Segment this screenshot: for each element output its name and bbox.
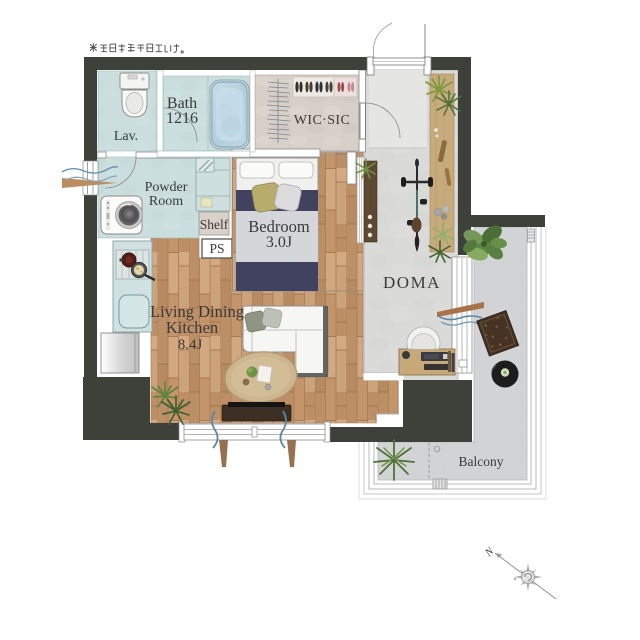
svg-text:8.4J: 8.4J (178, 337, 203, 353)
svg-text:3.0J: 3.0J (266, 234, 292, 251)
svg-text:WIC·SIC: WIC·SIC (294, 113, 350, 128)
svg-text:1216: 1216 (166, 110, 198, 127)
svg-text:Powder: Powder (145, 180, 188, 195)
svg-text:Balcony: Balcony (459, 454, 504, 469)
svg-text:DOMA: DOMA (383, 273, 441, 292)
svg-text:PS: PS (209, 241, 224, 256)
svg-text:Kitchen: Kitchen (166, 318, 218, 337)
svg-text:Room: Room (149, 194, 183, 209)
svg-text:Lav.: Lav. (114, 129, 138, 144)
svg-text:Shelf: Shelf (200, 217, 229, 232)
